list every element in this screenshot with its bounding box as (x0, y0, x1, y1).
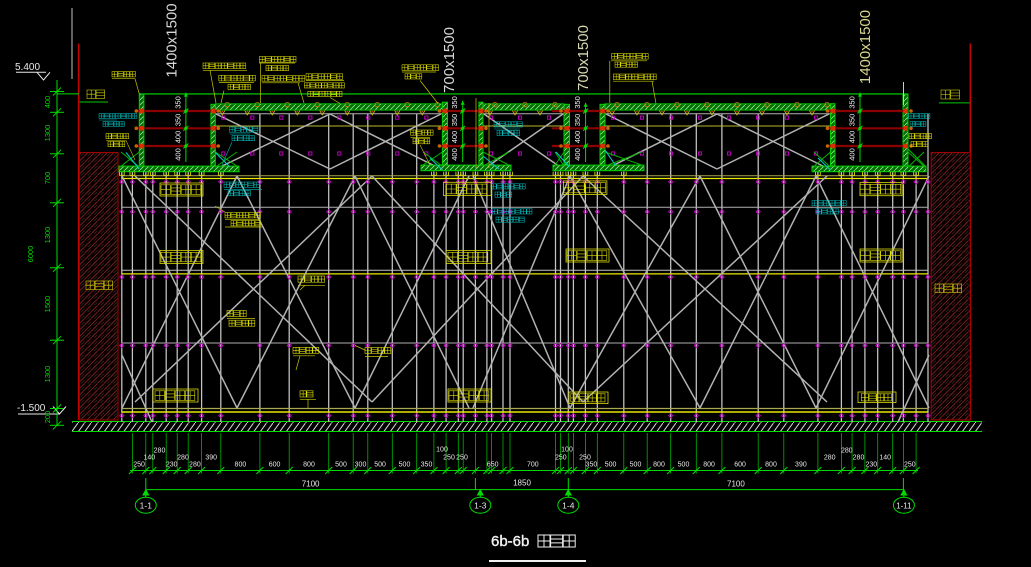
svg-text:800: 800 (303, 462, 315, 469)
svg-text:250: 250 (555, 455, 567, 462)
svg-text:230: 230 (166, 462, 178, 469)
svg-text:350: 350 (586, 462, 598, 469)
svg-text:390: 390 (795, 462, 807, 469)
svg-text:400: 400 (173, 131, 182, 144)
svg-text:600: 600 (734, 462, 746, 469)
svg-text:700x1500: 700x1500 (441, 27, 458, 93)
svg-text:800: 800 (765, 462, 777, 469)
svg-text:1400x1500: 1400x1500 (164, 3, 181, 77)
svg-text:800: 800 (235, 462, 247, 469)
svg-text:700x1500: 700x1500 (575, 25, 592, 91)
svg-text:800: 800 (703, 462, 715, 469)
svg-text:350: 350 (848, 96, 857, 109)
svg-text:140: 140 (879, 455, 891, 462)
svg-text:200: 200 (43, 411, 52, 424)
svg-text:1300: 1300 (43, 125, 52, 142)
svg-text:250: 250 (456, 455, 468, 462)
svg-text:1-11: 1-11 (896, 502, 912, 511)
svg-text:280: 280 (853, 455, 865, 462)
svg-text:5.400: 5.400 (15, 62, 40, 73)
svg-text:280: 280 (841, 448, 853, 455)
svg-text:500: 500 (374, 462, 386, 469)
svg-text:400: 400 (450, 148, 459, 161)
svg-text:350: 350 (173, 96, 182, 109)
svg-text:250: 250 (579, 455, 591, 462)
svg-text:280: 280 (824, 455, 836, 462)
svg-text:6b-6b: 6b-6b (491, 533, 529, 550)
svg-text:400: 400 (43, 96, 52, 109)
svg-text:230: 230 (865, 462, 877, 469)
svg-text:1-4: 1-4 (562, 501, 575, 511)
svg-text:140: 140 (143, 455, 155, 462)
svg-text:350: 350 (173, 114, 182, 127)
svg-text:6000: 6000 (26, 246, 35, 263)
svg-text:250: 250 (133, 462, 145, 469)
svg-text:500: 500 (605, 462, 617, 469)
svg-text:500: 500 (399, 462, 411, 469)
svg-text:1-1: 1-1 (140, 501, 153, 511)
svg-text:1-3: 1-3 (474, 501, 487, 511)
svg-text:400: 400 (848, 148, 857, 161)
svg-text:1400x1500: 1400x1500 (857, 10, 874, 84)
svg-text:280: 280 (189, 462, 201, 469)
svg-text:350: 350 (450, 96, 459, 109)
svg-text:350: 350 (450, 114, 459, 127)
svg-text:600: 600 (269, 462, 281, 469)
svg-text:700: 700 (43, 172, 52, 185)
svg-text:7100: 7100 (302, 480, 320, 489)
svg-text:400: 400 (848, 131, 857, 144)
svg-text:350: 350 (573, 96, 582, 109)
svg-text:250: 250 (443, 455, 455, 462)
svg-text:500: 500 (630, 462, 642, 469)
svg-text:1500: 1500 (43, 296, 52, 313)
svg-text:500: 500 (335, 462, 347, 469)
svg-text:400: 400 (573, 131, 582, 144)
svg-text:350: 350 (421, 462, 433, 469)
svg-text:700: 700 (527, 462, 539, 469)
svg-text:1300: 1300 (43, 227, 52, 244)
svg-text:500: 500 (678, 462, 690, 469)
svg-text:280: 280 (154, 448, 166, 455)
svg-text:350: 350 (573, 114, 582, 127)
svg-text:400: 400 (173, 148, 182, 161)
svg-text:250: 250 (904, 462, 916, 469)
svg-text:-1.500: -1.500 (17, 403, 46, 414)
svg-text:100: 100 (436, 447, 448, 454)
svg-text:350: 350 (848, 114, 857, 127)
svg-text:7100: 7100 (727, 480, 745, 489)
svg-text:1850: 1850 (513, 479, 531, 488)
svg-text:390: 390 (205, 455, 217, 462)
svg-text:650: 650 (487, 462, 499, 469)
svg-text:400: 400 (573, 148, 582, 161)
svg-text:280: 280 (177, 455, 189, 462)
svg-text:800: 800 (653, 462, 665, 469)
svg-text:300: 300 (355, 462, 367, 469)
svg-text:1300: 1300 (43, 366, 52, 383)
svg-text:400: 400 (450, 131, 459, 144)
svg-text:100: 100 (561, 447, 573, 454)
